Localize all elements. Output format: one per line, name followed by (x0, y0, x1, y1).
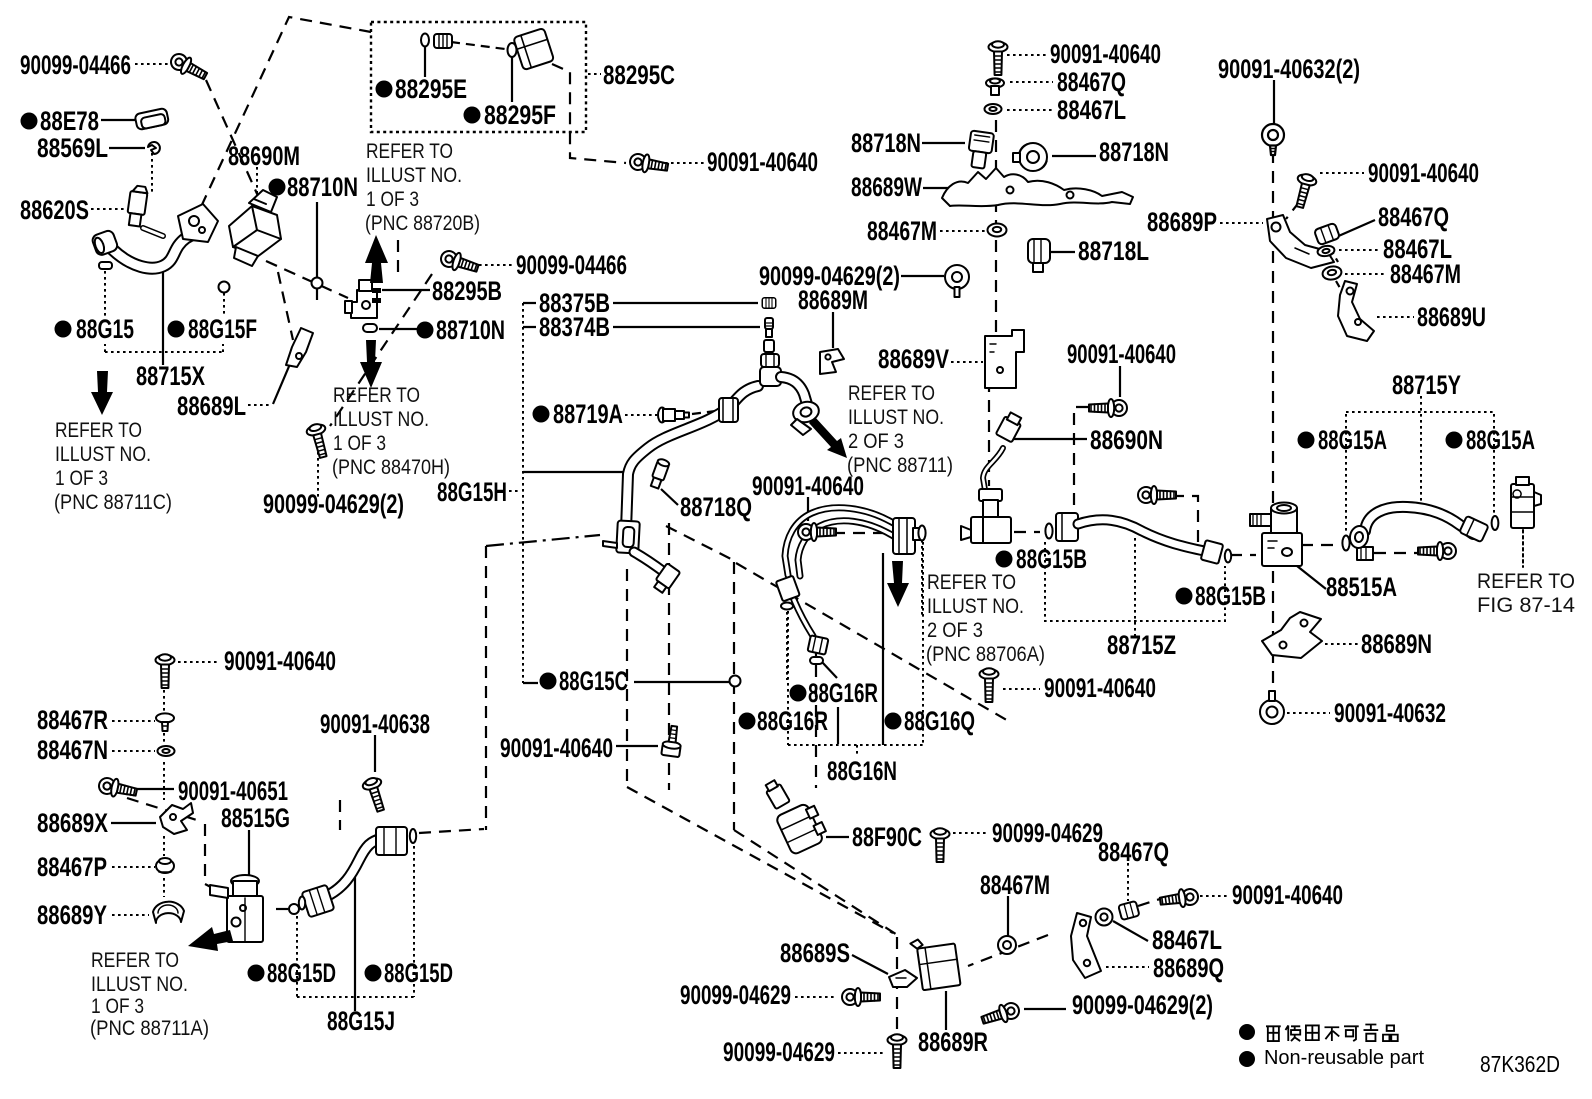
svg-text:90099-04466: 90099-04466 (516, 250, 627, 280)
svg-text:90099-04629: 90099-04629 (723, 1037, 835, 1067)
svg-text:88467Q: 88467Q (1378, 202, 1449, 232)
svg-text:88718N: 88718N (1099, 137, 1169, 167)
svg-text:88689W: 88689W (851, 172, 922, 202)
svg-text:REFER TO: REFER TO (55, 419, 142, 442)
svg-text:88718N: 88718N (851, 128, 921, 158)
svg-text:90091-40640: 90091-40640 (500, 733, 613, 763)
svg-text:88689L: 88689L (177, 391, 246, 421)
svg-text:88G15D: 88G15D (267, 958, 336, 988)
svg-text:88689N: 88689N (1361, 629, 1432, 659)
svg-text:90091-40640: 90091-40640 (1067, 339, 1176, 369)
svg-text:90099-04629: 90099-04629 (680, 980, 791, 1010)
svg-text:REFER TO: REFER TO (333, 384, 420, 407)
svg-text:ILLUST NO.: ILLUST NO. (848, 406, 944, 429)
svg-text:88620S: 88620S (20, 195, 89, 225)
svg-text:88295B: 88295B (432, 276, 502, 306)
svg-text:1 OF 3: 1 OF 3 (333, 432, 386, 455)
svg-text:88G16N: 88G16N (827, 756, 897, 786)
svg-text:88G16Q: 88G16Q (904, 706, 975, 736)
svg-text:90091-40632(2): 90091-40632(2) (1218, 54, 1360, 84)
svg-text:88689U: 88689U (1417, 302, 1486, 332)
svg-text:88295C: 88295C (603, 60, 675, 90)
svg-text:88710N: 88710N (287, 172, 358, 202)
svg-text:90091-40632: 90091-40632 (1334, 698, 1446, 728)
svg-text:88G15F: 88G15F (188, 314, 257, 344)
svg-text:REFER TO: REFER TO (927, 571, 1016, 594)
svg-text:88718L: 88718L (1078, 236, 1149, 266)
svg-text:88689R: 88689R (918, 1027, 988, 1057)
svg-text:88467L: 88467L (1057, 95, 1126, 125)
svg-text:88690M: 88690M (228, 141, 300, 171)
svg-text:2 OF 3: 2 OF 3 (848, 430, 904, 453)
svg-text:88715Y: 88715Y (1392, 370, 1461, 400)
svg-text:REFER TO: REFER TO (848, 382, 935, 405)
svg-text:88718Q: 88718Q (680, 492, 752, 522)
svg-text:(PNC 88720B): (PNC 88720B) (365, 212, 480, 235)
svg-text:88E78: 88E78 (40, 106, 99, 136)
svg-text:88715Z: 88715Z (1107, 630, 1176, 660)
svg-text:2 OF 3: 2 OF 3 (927, 619, 983, 642)
svg-text:90091-40640: 90091-40640 (1044, 673, 1156, 703)
svg-text:90099-04629(2): 90099-04629(2) (759, 261, 900, 291)
svg-text:90091-40640: 90091-40640 (1368, 158, 1479, 188)
svg-text:88467Q: 88467Q (1057, 67, 1126, 97)
svg-text:90099-04629(2): 90099-04629(2) (263, 489, 404, 519)
svg-text:88467M: 88467M (980, 870, 1050, 900)
svg-text:90099-04629(2): 90099-04629(2) (1072, 990, 1213, 1020)
svg-text:88G15: 88G15 (76, 314, 134, 344)
svg-text:ILLUST NO.: ILLUST NO. (91, 973, 188, 996)
svg-text:(PNC 88706A): (PNC 88706A) (926, 643, 1045, 666)
svg-text:88G15A: 88G15A (1466, 425, 1535, 455)
svg-text:REFER TO: REFER TO (1477, 570, 1575, 593)
svg-text:90091-40640: 90091-40640 (707, 147, 818, 177)
svg-text:90099-04629: 90099-04629 (992, 818, 1103, 848)
svg-text:ILLUST NO.: ILLUST NO. (366, 164, 462, 187)
svg-text:88689Q: 88689Q (1153, 953, 1224, 983)
svg-text:90091-40638: 90091-40638 (320, 709, 430, 739)
svg-text:88689V: 88689V (878, 344, 949, 374)
svg-text:90091-40651: 90091-40651 (178, 776, 288, 806)
svg-text:FIG 87-14: FIG 87-14 (1477, 594, 1575, 617)
svg-text:88F90C: 88F90C (852, 822, 922, 852)
svg-text:87K362D: 87K362D (1480, 1051, 1560, 1077)
svg-text:88467M: 88467M (867, 216, 937, 246)
svg-text:88G16R: 88G16R (757, 706, 828, 736)
svg-text:88467M: 88467M (1390, 259, 1461, 289)
svg-text:88689Y: 88689Y (37, 900, 107, 930)
svg-text:88569L: 88569L (37, 133, 108, 163)
svg-text:1 OF 3: 1 OF 3 (91, 995, 144, 1018)
svg-text:88515A: 88515A (1326, 572, 1397, 602)
svg-text:Non-reusable part: Non-reusable part (1264, 1047, 1424, 1069)
svg-text:88689P: 88689P (1147, 207, 1217, 237)
svg-text:88710N: 88710N (436, 315, 505, 345)
svg-text:88515G: 88515G (221, 803, 290, 833)
svg-text:(PNC 88470H): (PNC 88470H) (332, 456, 450, 479)
svg-text:88G15B: 88G15B (1016, 544, 1087, 574)
svg-text:88715X: 88715X (136, 361, 205, 391)
svg-text:90091-40640: 90091-40640 (1050, 39, 1161, 69)
svg-text:88690N: 88690N (1090, 425, 1163, 455)
svg-text:88689S: 88689S (780, 938, 850, 968)
svg-text:REFER TO: REFER TO (91, 949, 179, 972)
svg-text:88467Q: 88467Q (1098, 837, 1169, 867)
svg-text:88295F: 88295F (484, 100, 556, 130)
svg-text:(PNC 88711A): (PNC 88711A) (90, 1017, 209, 1040)
svg-text:(PNC 88711): (PNC 88711) (847, 454, 953, 477)
svg-text:90091-40640: 90091-40640 (224, 646, 336, 676)
svg-text:88G15B: 88G15B (1195, 581, 1266, 611)
svg-text:(PNC 88711C): (PNC 88711C) (54, 491, 172, 514)
svg-text:88295E: 88295E (395, 74, 467, 104)
svg-text:ILLUST NO.: ILLUST NO. (55, 443, 151, 466)
svg-text:88467N: 88467N (37, 735, 108, 765)
svg-text:88G15H: 88G15H (437, 477, 507, 507)
svg-text:88467R: 88467R (37, 705, 108, 735)
svg-text:REFER TO: REFER TO (366, 140, 453, 163)
svg-text:90091-40640: 90091-40640 (1232, 880, 1343, 910)
svg-text:88G15D: 88G15D (384, 958, 453, 988)
svg-text:88374B: 88374B (539, 312, 610, 342)
svg-text:88467P: 88467P (37, 852, 107, 882)
svg-text:88719A: 88719A (553, 399, 623, 429)
svg-text:88G16R: 88G16R (808, 678, 878, 708)
svg-text:88467L: 88467L (1152, 925, 1222, 955)
svg-text:1 OF 3: 1 OF 3 (366, 188, 419, 211)
svg-text:88G15C: 88G15C (559, 666, 628, 696)
svg-text:1 OF 3: 1 OF 3 (55, 467, 108, 490)
svg-text:88689X: 88689X (37, 808, 108, 838)
svg-text:90099-04466: 90099-04466 (20, 50, 131, 80)
svg-text:88G15A: 88G15A (1318, 425, 1387, 455)
svg-text:ILLUST NO.: ILLUST NO. (333, 408, 429, 431)
svg-text:ILLUST NO.: ILLUST NO. (927, 595, 1024, 618)
svg-text:88G15J: 88G15J (327, 1006, 395, 1036)
